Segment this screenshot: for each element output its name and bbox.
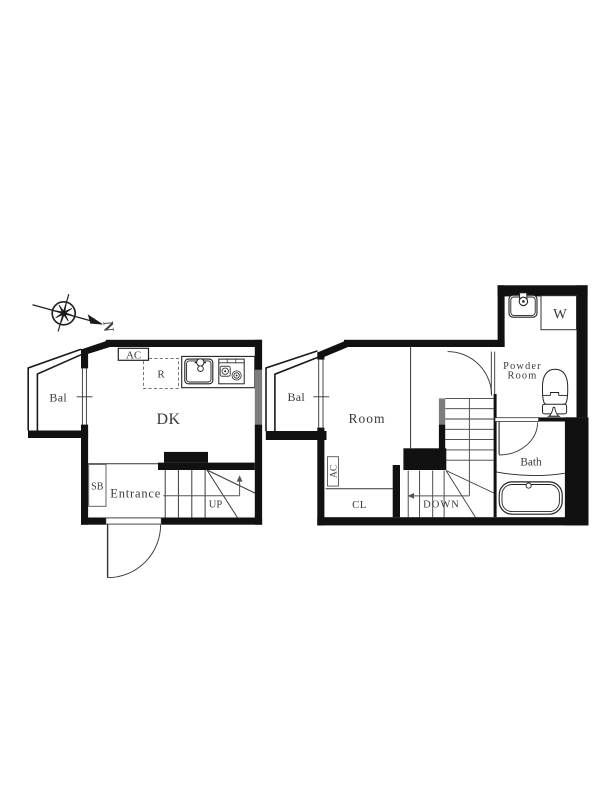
svg-text:Room: Room <box>348 411 385 426</box>
svg-text:Bal: Bal <box>288 390 306 404</box>
svg-text:AC: AC <box>126 350 141 362</box>
svg-text:AC: AC <box>329 465 339 478</box>
svg-text:R: R <box>157 369 165 381</box>
svg-text:W: W <box>553 306 567 322</box>
svg-text:Room: Room <box>508 370 538 381</box>
svg-text:Bath: Bath <box>520 457 542 469</box>
svg-text:UP: UP <box>209 500 223 511</box>
svg-text:Entrance: Entrance <box>110 486 161 500</box>
svg-text:DK: DK <box>156 411 180 428</box>
svg-text:N: N <box>99 321 116 333</box>
svg-text:Bal: Bal <box>49 391 67 405</box>
svg-text:CL: CL <box>352 499 367 511</box>
svg-text:DOWN: DOWN <box>423 500 460 511</box>
svg-text:SB: SB <box>91 482 104 493</box>
